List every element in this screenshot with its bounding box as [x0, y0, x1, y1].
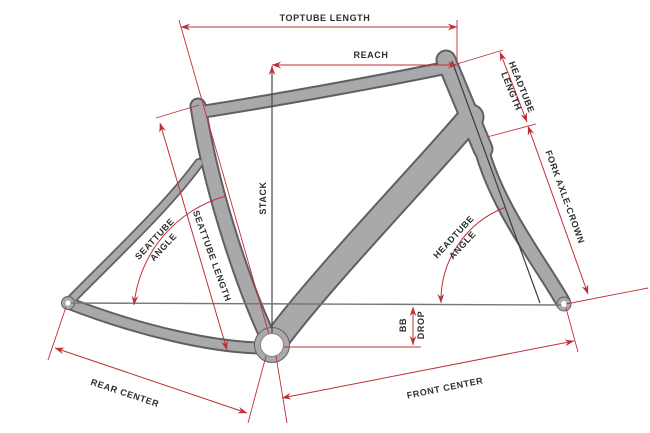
label-toptube-length: TOPTUBE LENGTH: [280, 13, 371, 23]
label-bb-text: BB: [398, 318, 408, 332]
toptube-fill: [201, 67, 450, 112]
geometry-diagram-canvas: TOPTUBE LENGTH REACH HEADTUBE LENGTH FOR…: [0, 0, 650, 433]
ext-bb-front-tick: [276, 356, 287, 423]
ext-front-axle-tick: [566, 288, 648, 304]
label-front-center: FRONT CENTER: [406, 375, 484, 400]
label-stack: STACK: [258, 181, 268, 214]
ext-headtube-top-tick: [457, 50, 503, 64]
rear-axle-hole: [65, 300, 70, 305]
label-headtube-length: HEADTUBE LENGTH: [497, 60, 537, 119]
ext-front-axle-down-tick: [566, 308, 578, 352]
label-rear-center-text: REAR CENTER: [89, 377, 160, 409]
bike-geometry-diagram: TOPTUBE LENGTH REACH HEADTUBE LENGTH FOR…: [0, 0, 650, 433]
ext-rear-axle-tick: [48, 307, 66, 360]
frame-silhouette: [62, 60, 572, 363]
label-drop: DROP: [416, 311, 426, 339]
bb-circle: [261, 334, 284, 357]
seatstay-fill: [68, 163, 199, 303]
ext-bb-rear-tick: [248, 356, 266, 423]
downtube-fill: [277, 117, 471, 339]
label-bb: BB: [398, 318, 408, 332]
label-reach: REACH: [353, 50, 388, 60]
label-stack-text: STACK: [258, 181, 268, 214]
label-front-center-text: FRONT CENTER: [406, 375, 484, 400]
label-headtube-angle: HEADTUBE ANGLE: [431, 213, 484, 268]
label-drop-text: DROP: [416, 311, 426, 339]
label-rear-center: REAR CENTER: [89, 377, 160, 409]
ext-fork-crown-tick: [487, 124, 536, 137]
